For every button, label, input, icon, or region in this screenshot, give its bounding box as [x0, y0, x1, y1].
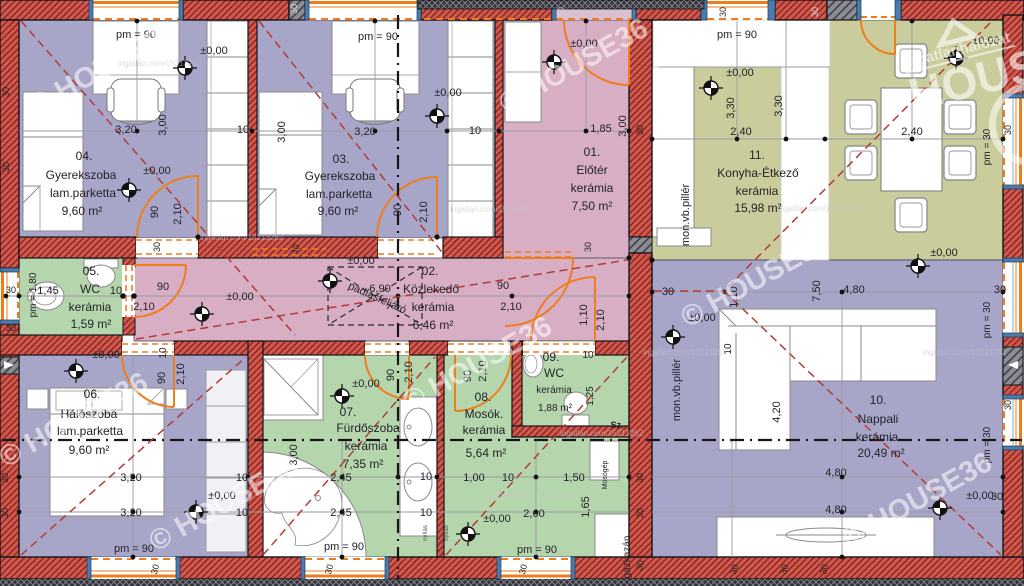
svg-text:Előtér: Előtér	[576, 163, 607, 177]
svg-text:05.: 05.	[83, 264, 100, 278]
svg-text:2,60: 2,60	[523, 508, 544, 520]
svg-text:10.: 10.	[870, 393, 887, 407]
svg-text:10: 10	[158, 347, 169, 359]
svg-text:90: 90	[157, 281, 169, 293]
svg-text:6,90: 6,90	[369, 283, 390, 295]
svg-text:±0,00: ±0,00	[966, 490, 993, 502]
svg-text:1,45: 1,45	[37, 285, 58, 297]
svg-text:10: 10	[110, 285, 122, 297]
svg-text:ingatlan.com/15213262: ingatlan.com/15213262	[450, 205, 534, 214]
svg-text:30: 30	[6, 323, 16, 333]
svg-text:kerámia: kerámia	[69, 300, 112, 314]
svg-text:15,98 m²: 15,98 m²	[734, 201, 781, 215]
svg-text:Konyha-Étkező: Konyha-Étkező	[717, 165, 799, 180]
svg-text:kerámia: kerámia	[345, 439, 388, 453]
svg-text:±0,00: ±0,00	[352, 378, 379, 390]
svg-text:30: 30	[6, 285, 16, 295]
svg-text:30: 30	[662, 286, 674, 298]
svg-text:mon.vb.pillér: mon.vb.pillér	[680, 183, 692, 246]
svg-text:2,10: 2,10	[175, 363, 187, 384]
svg-text:08.: 08.	[475, 390, 492, 404]
svg-text:nyílás: nyílás	[423, 525, 429, 541]
svg-text:1,50: 1,50	[563, 472, 584, 484]
svg-text:30: 30	[994, 284, 1006, 296]
svg-text:ingatlan.com/15213262: ingatlan.com/15213262	[560, 429, 644, 438]
svg-text:ingatlan.com/15213262: ingatlan.com/15213262	[778, 204, 862, 213]
svg-text:9,60 m²: 9,60 m²	[318, 204, 359, 218]
svg-text:7,50: 7,50	[811, 280, 823, 301]
svg-text:2,40: 2,40	[730, 126, 751, 138]
svg-text:Fürdőszoba: Fürdőszoba	[336, 421, 400, 435]
svg-text:±0,00: ±0,00	[347, 255, 374, 267]
svg-text:3,20: 3,20	[354, 126, 375, 138]
svg-text:2,10: 2,10	[500, 301, 521, 313]
svg-text:1,25: 1,25	[585, 386, 596, 406]
svg-text:1,88 m²: 1,88 m²	[538, 403, 573, 414]
svg-text:30: 30	[635, 508, 645, 518]
svg-text:10: 10	[420, 471, 432, 483]
svg-text:kerámia: kerámia	[571, 181, 614, 195]
svg-text:2,45: 2,45	[330, 472, 351, 484]
svg-text:pm = 90: pm = 90	[324, 541, 364, 553]
svg-text:90: 90	[385, 369, 397, 381]
svg-text:±0,00: ±0,00	[434, 87, 461, 99]
svg-text:7,50 m²: 7,50 m²	[572, 199, 613, 213]
svg-text:nyílás: nyílás	[444, 525, 450, 541]
svg-text:3,20: 3,20	[120, 507, 141, 519]
svg-text:3,00: 3,00	[276, 121, 288, 142]
svg-text:9,60 m²: 9,60 m²	[62, 204, 103, 218]
svg-text:2,45: 2,45	[330, 507, 351, 519]
svg-text:Gyerekszoba: Gyerekszoba	[46, 168, 117, 182]
svg-text:2,40: 2,40	[901, 126, 922, 138]
svg-text:Nappali: Nappali	[858, 412, 899, 426]
svg-text:±0,00: ±0,00	[226, 291, 253, 303]
svg-text:kerámia: kerámia	[736, 184, 779, 198]
svg-text:4,80: 4,80	[825, 467, 846, 479]
svg-text:WC: WC	[544, 366, 564, 380]
svg-text:30: 30	[718, 7, 728, 17]
svg-text:4,20: 4,20	[771, 401, 783, 422]
svg-text:90: 90	[149, 206, 161, 218]
svg-text:±0,00: ±0,00	[726, 67, 753, 79]
svg-text:02.: 02.	[422, 264, 439, 278]
svg-text:30: 30	[289, 4, 299, 14]
svg-text:30: 30	[635, 125, 645, 135]
svg-text:10: 10	[237, 124, 249, 136]
svg-text:pm = 90: pm = 90	[358, 31, 398, 43]
svg-text:ingatlan.com/15213262: ingatlan.com/15213262	[492, 491, 576, 500]
svg-text:1,85: 1,85	[590, 123, 611, 135]
svg-text:30: 30	[583, 242, 593, 252]
svg-text:±0,00: ±0,00	[200, 45, 227, 57]
svg-text:3,00: 3,00	[157, 114, 169, 135]
svg-text:2,10: 2,10	[595, 309, 607, 330]
svg-text:1,65: 1,65	[580, 496, 592, 517]
svg-text:mon.vb.pillér: mon.vb.pillér	[671, 358, 683, 421]
svg-text:3,20: 3,20	[120, 472, 141, 484]
svg-text:pm = 30: pm = 30	[982, 301, 993, 338]
svg-text:2,10: 2,10	[172, 203, 184, 224]
svg-text:10: 10	[502, 472, 514, 484]
svg-text:Mosógép: Mosógép	[602, 460, 609, 489]
svg-text:10: 10	[420, 507, 432, 519]
svg-text:07.: 07.	[340, 405, 357, 419]
svg-text:3,00: 3,00	[617, 115, 629, 136]
svg-text:pm = 90: pm = 90	[717, 29, 757, 41]
svg-text:10: 10	[469, 125, 481, 137]
svg-text:6,46 m²: 6,46 m²	[413, 318, 454, 332]
svg-text:90: 90	[392, 204, 404, 216]
svg-text:gázkazán: gázkazán	[622, 536, 633, 579]
svg-text:30: 30	[152, 242, 162, 252]
svg-text:01.: 01.	[584, 145, 601, 159]
svg-text:4,80: 4,80	[843, 284, 864, 296]
svg-text:1,59 m²: 1,59 m²	[71, 317, 112, 331]
svg-text:30: 30	[1003, 125, 1013, 135]
svg-text:4,80: 4,80	[825, 504, 846, 516]
svg-text:±0,00: ±0,00	[930, 247, 957, 259]
svg-text:90: 90	[156, 372, 168, 384]
svg-text:30: 30	[0, 508, 10, 518]
svg-text:30: 30	[635, 473, 645, 483]
svg-text:7,35 m²: 7,35 m²	[343, 457, 384, 471]
svg-text:2,10: 2,10	[403, 361, 415, 382]
svg-text:11.: 11.	[749, 148, 765, 162]
svg-text:pm = 90: pm = 90	[517, 544, 557, 556]
svg-text:3,30: 3,30	[773, 95, 785, 116]
svg-text:kerámia: kerámia	[412, 300, 455, 314]
svg-text:30: 30	[556, 7, 566, 17]
svg-text:09.: 09.	[543, 350, 560, 364]
svg-text:kerámia: kerámia	[463, 423, 506, 437]
svg-text:lam.parketta: lam.parketta	[306, 187, 372, 201]
svg-text:30: 30	[1003, 400, 1013, 410]
svg-text:90: 90	[497, 280, 509, 292]
svg-text:04.: 04.	[76, 149, 93, 163]
svg-text:2,10: 2,10	[418, 201, 430, 222]
svg-text:3,20: 3,20	[115, 124, 136, 136]
svg-text:30: 30	[991, 491, 1003, 503]
svg-text:Gyerekszoba: Gyerekszoba	[305, 169, 376, 183]
svg-text:±0,00: ±0,00	[143, 165, 170, 177]
svg-text:1,00: 1,00	[463, 472, 484, 484]
svg-text:kerámia: kerámia	[856, 430, 899, 444]
svg-text:±0,00: ±0,00	[92, 349, 119, 361]
svg-text:30: 30	[810, 7, 820, 17]
svg-text:±0,00: ±0,00	[483, 513, 510, 525]
svg-text:pm = 90: pm = 90	[114, 543, 154, 555]
svg-text:ingatlan.com/15213262: ingatlan.com/15213262	[118, 59, 202, 68]
svg-text:03.: 03.	[333, 152, 350, 166]
svg-text:lam.parketta: lam.parketta	[50, 186, 116, 200]
svg-text:WC: WC	[80, 282, 100, 296]
svg-text:1,10: 1,10	[578, 304, 590, 325]
svg-text:5,64 m²: 5,64 m²	[466, 446, 507, 460]
svg-text:20,49 m²: 20,49 m²	[857, 446, 904, 460]
svg-text:30: 30	[1, 87, 11, 97]
svg-text:30: 30	[1, 162, 11, 172]
svg-text:2,10: 2,10	[133, 301, 154, 313]
svg-text:10: 10	[582, 350, 594, 361]
svg-text:3,30: 3,30	[725, 97, 737, 118]
svg-text:ingatlan.com/15213262: ingatlan.com/15213262	[923, 348, 1007, 357]
svg-text:Közlekedő: Közlekedő	[403, 282, 459, 296]
svg-text:ingatlan.com/15213262: ingatlan.com/15213262	[200, 233, 284, 242]
svg-text:9,60 m²: 9,60 m²	[69, 443, 110, 457]
svg-text:kerámia: kerámia	[536, 385, 572, 396]
svg-text:ingatlan.com/15213262: ingatlan.com/15213262	[643, 348, 727, 357]
svg-text:Mosók.: Mosók.	[465, 407, 504, 421]
